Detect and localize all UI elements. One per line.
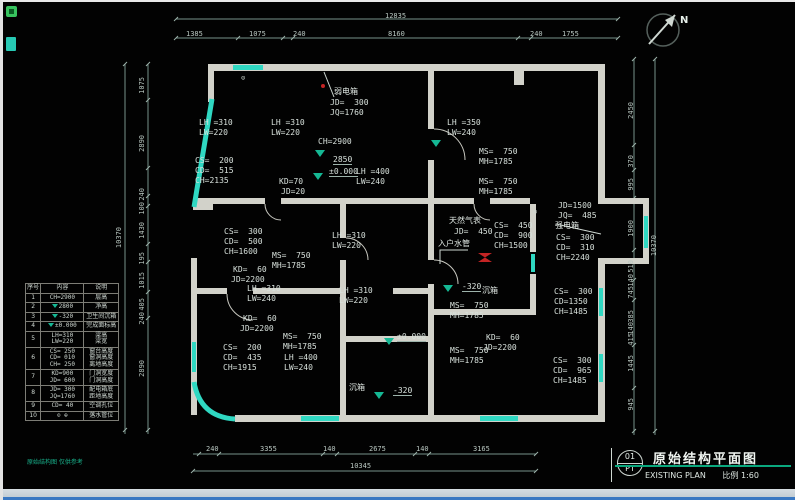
- drain-symbol-icon: ⊙: [533, 208, 537, 217]
- legend-row: 4±0.000完成面标高: [26, 322, 119, 332]
- dim-right: 140: [627, 274, 635, 287]
- level-label: ±0.000: [397, 332, 426, 342]
- annotation: LH =310: [339, 286, 373, 295]
- annotation: CS= 450: [494, 221, 533, 230]
- annotation-gas-meter: 天然气表: [449, 216, 481, 225]
- annotation: LW=240: [356, 177, 385, 186]
- dim-bottom: 240: [206, 445, 219, 453]
- title-block: 01 PT 原始结构平面图 EXISTING PLAN 比例 1:60: [611, 446, 793, 484]
- level-triangle-icon: [384, 338, 394, 345]
- annotation: CS= 300: [553, 356, 592, 365]
- legend-row-content: 2800: [41, 303, 84, 313]
- annotation: LH =310: [199, 118, 233, 127]
- legend-row-number: 10: [26, 411, 41, 421]
- dim-bottom: 2675: [369, 445, 386, 453]
- dim-bottom: 3355: [260, 445, 277, 453]
- level-label: -320: [393, 386, 412, 396]
- annotation: CD= 435: [223, 353, 262, 362]
- annotation: LW=240: [447, 128, 476, 137]
- sheet-number-badge: 01 PT: [617, 450, 643, 476]
- annotation: KD= 60: [233, 265, 267, 274]
- dim-right: 945: [627, 398, 635, 411]
- annotation: LH =350: [447, 118, 481, 127]
- annotation: CS= 200: [223, 343, 262, 352]
- legend-row-content: -320: [41, 312, 84, 322]
- dim-left: 240: [138, 312, 146, 325]
- annotation: CD= 900: [494, 231, 533, 240]
- level-label: ±0.000: [329, 167, 358, 177]
- sheet-number: 01: [618, 451, 642, 463]
- annotation: JD=2200: [231, 275, 265, 284]
- annotation: CH=1485: [554, 307, 588, 316]
- annotation: KD= 60: [486, 333, 520, 342]
- level-triangle-icon: [315, 150, 325, 157]
- annotation: LW=220: [339, 296, 368, 305]
- title-underline: [615, 465, 791, 467]
- annotation: MH=1785: [283, 342, 317, 351]
- annotation: JD= 450: [454, 227, 493, 236]
- legend-row-desc: 空调孔位: [84, 402, 119, 412]
- legend-row-content: CD= 40: [41, 402, 84, 412]
- dim-left: 2890: [138, 360, 146, 377]
- drain-symbol-icon: ⊙: [241, 74, 245, 83]
- drawing-title-en: EXISTING PLAN 比例 1:60: [645, 470, 759, 481]
- legend-row-desc: 窗台高度窗洞高度离地高度: [84, 347, 119, 370]
- annotation: LH =310: [271, 118, 305, 127]
- level-triangle-icon: [431, 140, 441, 147]
- legend-row-desc: 层高: [84, 293, 119, 303]
- level-triangle-icon: [374, 392, 384, 399]
- legend-row-content: CS= 250CD= 010CH= 250: [41, 347, 84, 370]
- legend-header: 内容: [41, 284, 84, 294]
- legend-row-number: 1: [26, 293, 41, 303]
- annotation: JD= 300: [330, 98, 369, 107]
- legend-row: 3-320卫生间沉箱: [26, 312, 119, 322]
- legend-row-desc: 梁高梁宽: [84, 331, 119, 347]
- north-arrow-icon: [647, 14, 679, 46]
- dim-right: 385: [627, 310, 635, 323]
- legend-row-number: 2: [26, 303, 41, 313]
- dim-right: 2450: [627, 102, 635, 119]
- legend-row: 7KD=900JD= 600门洞宽度门洞高度: [26, 370, 119, 386]
- level-triangle-icon: [313, 173, 323, 180]
- annotation-sunken-box: 沉箱: [349, 383, 365, 392]
- dim-top: 1755: [562, 30, 579, 38]
- dim-left: 2890: [138, 135, 146, 152]
- dim-top: 240: [530, 30, 543, 38]
- legend-note: 原始结构图 仅供参考: [27, 457, 83, 466]
- level-label: -320: [462, 282, 481, 292]
- legend-row-desc: 完成面标高: [84, 322, 119, 332]
- annotation: CH=1600: [224, 247, 258, 256]
- dim-bottom: 3165: [473, 445, 490, 453]
- legend-row-content: ⊙ ⊕: [41, 411, 84, 421]
- annotation: JD=20: [281, 187, 305, 196]
- dim-bottom: 140: [416, 445, 429, 453]
- legend-row: 10⊙ ⊕落水管位: [26, 411, 119, 421]
- legend-row-number: 7: [26, 370, 41, 386]
- annotation: MS= 750: [450, 301, 489, 310]
- legend-row-number: 6: [26, 347, 41, 370]
- annotation: CD= 515: [195, 166, 234, 175]
- annotation: CS= 200: [195, 156, 234, 165]
- legend-row: 22800净高: [26, 303, 119, 313]
- dim-right: 415: [627, 333, 635, 346]
- annotation: CH=2135: [195, 176, 229, 185]
- annotation: CS= 300: [224, 227, 263, 236]
- dim-left: 240: [138, 188, 146, 201]
- annotation: JD=1500: [558, 201, 592, 210]
- legend-row-content: KD=900JD= 600: [41, 370, 84, 386]
- legend-row-number: 8: [26, 386, 41, 402]
- dim-right: 370: [627, 155, 635, 168]
- legend-row-desc: 卫生间沉箱: [84, 312, 119, 322]
- annotation: JQ= 485: [558, 211, 597, 220]
- annotation: MH=1785: [479, 187, 513, 196]
- legend-row-number: 5: [26, 331, 41, 347]
- annotation: KD= 60: [243, 314, 277, 323]
- legend-row-desc: 配电箱底距地高度: [84, 386, 119, 402]
- legend-row-desc: 门洞宽度门洞高度: [84, 370, 119, 386]
- annotation: CS= 300: [556, 233, 595, 242]
- dim-left: 1015: [138, 272, 146, 289]
- legend-row-content: ±0.000: [41, 322, 84, 332]
- legend-header: 序号: [26, 284, 41, 294]
- legend-header: 说明: [84, 284, 119, 294]
- annotation: CD= 310: [556, 243, 595, 252]
- annotation: MH=1785: [450, 356, 484, 365]
- annotation: CH=1485: [553, 376, 587, 385]
- annotation-weak-current-box: 弱电箱: [334, 87, 358, 96]
- annotation: MH=1785: [479, 157, 513, 166]
- annotation: CD= 965: [553, 366, 592, 375]
- legend-row: 1CH=2900层高: [26, 293, 119, 303]
- annotation: JQ=1760: [330, 108, 364, 117]
- legend-row-desc: 落水管位: [84, 411, 119, 421]
- dim-bottom: 140: [323, 445, 336, 453]
- annotation: LW=220: [199, 128, 228, 137]
- legend-row: 5LH=310LW=220梁高梁宽: [26, 331, 119, 347]
- annotation: LW=240: [247, 294, 276, 303]
- dim-top: 8160: [388, 30, 405, 38]
- dim-bottom-total: 10345: [350, 462, 371, 470]
- annotation: CH=1500: [494, 241, 528, 250]
- annotation: CH=1915: [223, 363, 257, 372]
- annotation: LW=240: [284, 363, 313, 372]
- dim-right: 745: [627, 286, 635, 299]
- legend-row: 8JD= 300JQ=1760配电箱底距地高度: [26, 386, 119, 402]
- dim-left-total: 10370: [115, 227, 123, 248]
- dim-left: 1430: [138, 222, 146, 239]
- legend-row: 9CD= 40空调孔位: [26, 402, 119, 412]
- dim-top: 240: [293, 30, 306, 38]
- legend-row-number: 9: [26, 402, 41, 412]
- north-label: N: [680, 16, 688, 25]
- legend-row-number: 4: [26, 322, 41, 332]
- dim-left: 405: [138, 298, 146, 311]
- level-triangle-icon: [443, 285, 453, 292]
- annotation-water-inlet: 入户水管: [438, 239, 470, 248]
- level-triangle-icon: [52, 304, 58, 308]
- dim-right: 995: [627, 178, 635, 191]
- dim-top-total: 12835: [385, 12, 406, 20]
- level-triangle-icon: [52, 314, 58, 318]
- annotation: KD=70: [279, 177, 303, 186]
- annotation: MH=1785: [450, 311, 484, 320]
- annotation: JD=2200: [240, 324, 274, 333]
- legend-table: 序号内容说明 1CH=2900层高22800净高3-320卫生间沉箱4±0.00…: [25, 283, 119, 421]
- annotation: LW=220: [271, 128, 300, 137]
- level-triangle-icon: [48, 323, 54, 327]
- annotation: CD= 500: [224, 237, 263, 246]
- annotation: MS= 750: [283, 332, 322, 341]
- drawing-scene: 序号内容说明 1CH=2900层高22800净高3-320卫生间沉箱4±0.00…: [3, 2, 795, 500]
- annotation-sunken-box: 沉箱: [482, 286, 498, 295]
- scale-label: 比例 1:60: [722, 471, 759, 480]
- dim-top: 1385: [186, 30, 203, 38]
- annotation: LW=220: [332, 241, 361, 250]
- dim-right: 1900: [627, 220, 635, 237]
- legend-row-content: JD= 300JQ=1760: [41, 386, 84, 402]
- dim-left: 1075: [138, 77, 146, 94]
- annotation: CH=2240: [556, 253, 590, 262]
- title-block-divider: [611, 448, 612, 482]
- annotation: CH=2900: [318, 137, 352, 146]
- legend-row-desc: 净高: [84, 303, 119, 313]
- annotation: LH =400: [356, 167, 390, 176]
- floorplan-drawing: [3, 2, 795, 500]
- dim-right: 510: [627, 260, 635, 273]
- dim-right-total: 10370: [650, 235, 658, 256]
- dim-left: 195: [138, 252, 146, 265]
- annotation: MS= 750: [479, 177, 518, 186]
- annotation: MH=1785: [272, 261, 306, 270]
- annotation: MS= 750: [272, 251, 311, 260]
- cad-viewer-frame: 序号内容说明 1CH=2900层高22800净高3-320卫生间沉箱4±0.00…: [0, 0, 795, 500]
- dim-top: 1075: [249, 30, 266, 38]
- annotation: MS= 750: [450, 346, 489, 355]
- annotation-strong-current-box: 强电箱: [555, 221, 579, 230]
- legend-row-content: LH=310LW=220: [41, 331, 84, 347]
- legend-row: 6CS= 250CD= 010CH= 250窗台高度窗洞高度离地高度: [26, 347, 119, 370]
- dim-right: 1445: [627, 355, 635, 372]
- annotation: LH =310: [332, 231, 366, 240]
- annotation: LH =310: [247, 284, 281, 293]
- level-label: 2850: [333, 155, 352, 165]
- annotation: CD=1350: [554, 297, 588, 306]
- legend-header-row: 序号内容说明: [26, 284, 119, 294]
- annotation: LH =400: [284, 353, 318, 362]
- legend-row-number: 3: [26, 312, 41, 322]
- red-dot: [321, 84, 325, 88]
- annotation: CS= 300: [554, 287, 593, 296]
- annotation: MS= 750: [479, 147, 518, 156]
- legend-row-content: CH=2900: [41, 293, 84, 303]
- dim-left: 100: [138, 202, 146, 215]
